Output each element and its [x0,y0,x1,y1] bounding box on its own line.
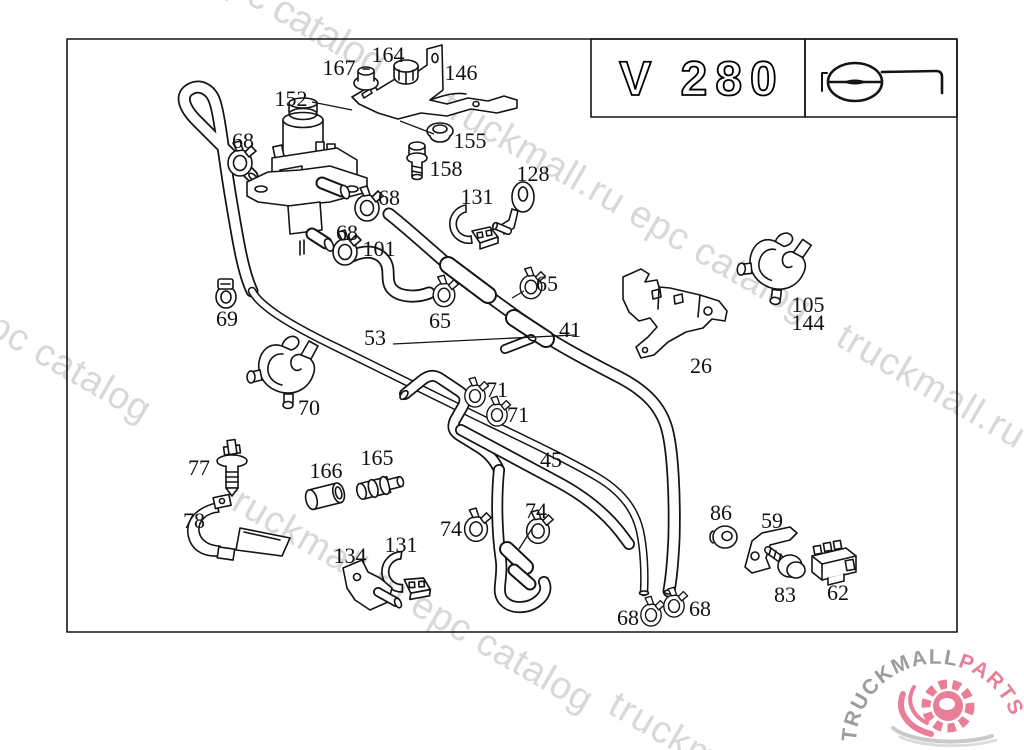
hanger-link-128 [492,182,534,234]
clamp-65-a [433,275,458,307]
clamp-69 [216,279,236,308]
part-label-65-13: 65 [429,308,451,333]
bleeder-valve-158 [407,142,427,180]
part-label-77-23: 77 [188,455,210,480]
part-label-146-2: 146 [445,60,478,85]
part-label-45-26: 45 [540,447,562,472]
part-label-71-21: 71 [486,377,508,402]
part-label-68-6: 68 [232,128,254,153]
part-label-164-1: 164 [372,42,405,67]
part-label-131-9: 131 [461,184,494,209]
part-label-165-25: 165 [361,445,394,470]
part-label-65-12: 65 [536,271,558,296]
part-label-131-31: 131 [385,532,418,557]
part-label-41-16: 41 [559,317,581,342]
part-label-68-8: 68 [336,220,358,245]
clip-131-a [450,205,498,249]
part-label-26-17: 26 [690,353,712,378]
part-label-134-30: 134 [334,543,367,568]
parts-diagram-canvas: truckmall.ru epc catalogtruckmall.ru epc… [0,0,1024,750]
part-label-155-4: 155 [454,128,487,153]
leader-line-0 [312,102,352,110]
connector-165 [355,472,405,501]
part-label-74-28: 74 [440,516,462,541]
steering-wheel-icon [822,63,942,101]
connector-62 [812,540,856,585]
part-label-71-22: 71 [507,402,529,427]
part-label-78-27: 78 [183,508,205,533]
clamp-74-a [465,508,492,541]
part-label-53-15: 53 [364,325,386,350]
part-label-74-29: 74 [525,498,547,523]
part-label-68-37: 68 [689,596,711,621]
part-label-167-0: 167 [323,55,356,80]
clamp-68-d [641,596,665,626]
part-label-59-33: 59 [761,508,783,533]
model-badge-text: V 280 [619,53,784,106]
part-label-101-11: 101 [363,236,396,261]
part-label-69-14: 69 [216,306,238,331]
part-label-86-32: 86 [710,500,732,525]
sleeve-166 [304,482,347,511]
part-label-83-34: 83 [774,582,796,607]
part-label-158-5: 158 [430,156,463,181]
part-label-68-36: 68 [617,605,639,630]
part-label-152-3: 152 [275,86,308,111]
screw-167 [354,67,378,90]
part-label-166-24: 166 [310,458,343,483]
part-label-128-10: 128 [517,161,550,186]
truckmall-parts-logo: TRUCKMALLPARTS [838,646,1024,746]
part-label-144-19: 144 [792,310,825,335]
bracket-26 [623,269,727,358]
part-label-68-7: 68 [378,185,400,210]
watermark-layer: truckmall.ru epc catalogtruckmall.ru epc… [0,0,1024,750]
watermark-text-5: truckmall.ru epc catalog [830,315,1024,566]
logo-gear-icon [926,684,970,728]
grommet-86 [710,526,737,548]
part-label-70-20: 70 [298,395,320,420]
bolt-83 [768,548,805,578]
part-label-62-35: 62 [827,580,849,605]
watermark-text-2: truckmall.ru epc catalog [0,184,158,430]
